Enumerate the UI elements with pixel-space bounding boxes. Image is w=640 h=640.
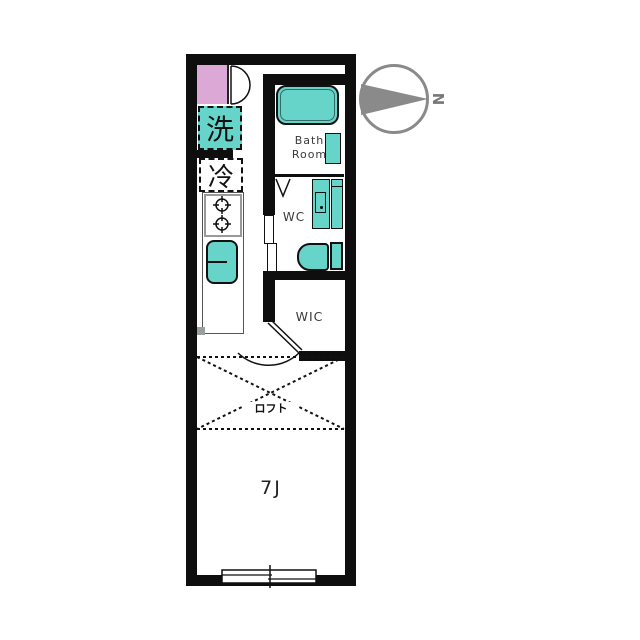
two-burner-stove: [204, 194, 242, 237]
toilet-bowl: [297, 243, 329, 271]
counter-post: [197, 327, 205, 335]
wall-corridor-upper: [263, 74, 275, 215]
entrance-step: [197, 65, 229, 104]
loft-label: ロフト: [244, 402, 298, 416]
refrigerator-space: 冷: [199, 158, 243, 192]
wall-wic-bottom: [299, 351, 356, 361]
vanity-knob: [320, 206, 323, 209]
floorplan-canvas: 洗 冷 Bath Room WC WIC ロフト 7J N: [0, 0, 640, 640]
wc-sliding-door-panel-lower: [267, 243, 277, 272]
washbasin-counter: [331, 179, 343, 229]
kitchen-sink: [206, 240, 238, 284]
toilet-tank: [330, 242, 343, 270]
bathtub: [276, 85, 339, 125]
wall-bath-top: [263, 74, 345, 85]
bathroom-label: Bath Room: [275, 134, 344, 162]
wall-bath-wc-divider: [275, 174, 344, 177]
wall-wc-bottom: [263, 271, 345, 280]
washing-machine-space: 洗: [198, 106, 242, 150]
refrigerator-label: 冷: [208, 157, 234, 194]
washing-machine-label: 洗: [206, 108, 234, 148]
vanity-cabinet-door: [315, 192, 326, 213]
compass-north-label: N: [429, 90, 447, 108]
wic-label: WIC: [275, 309, 344, 325]
wc-label: WC: [275, 210, 313, 225]
compass-circle: [359, 64, 429, 134]
wc-sliding-door-panel-upper: [264, 215, 274, 244]
main-room-size-label: 7J: [241, 477, 301, 501]
washbasin-vanity: [312, 179, 330, 229]
